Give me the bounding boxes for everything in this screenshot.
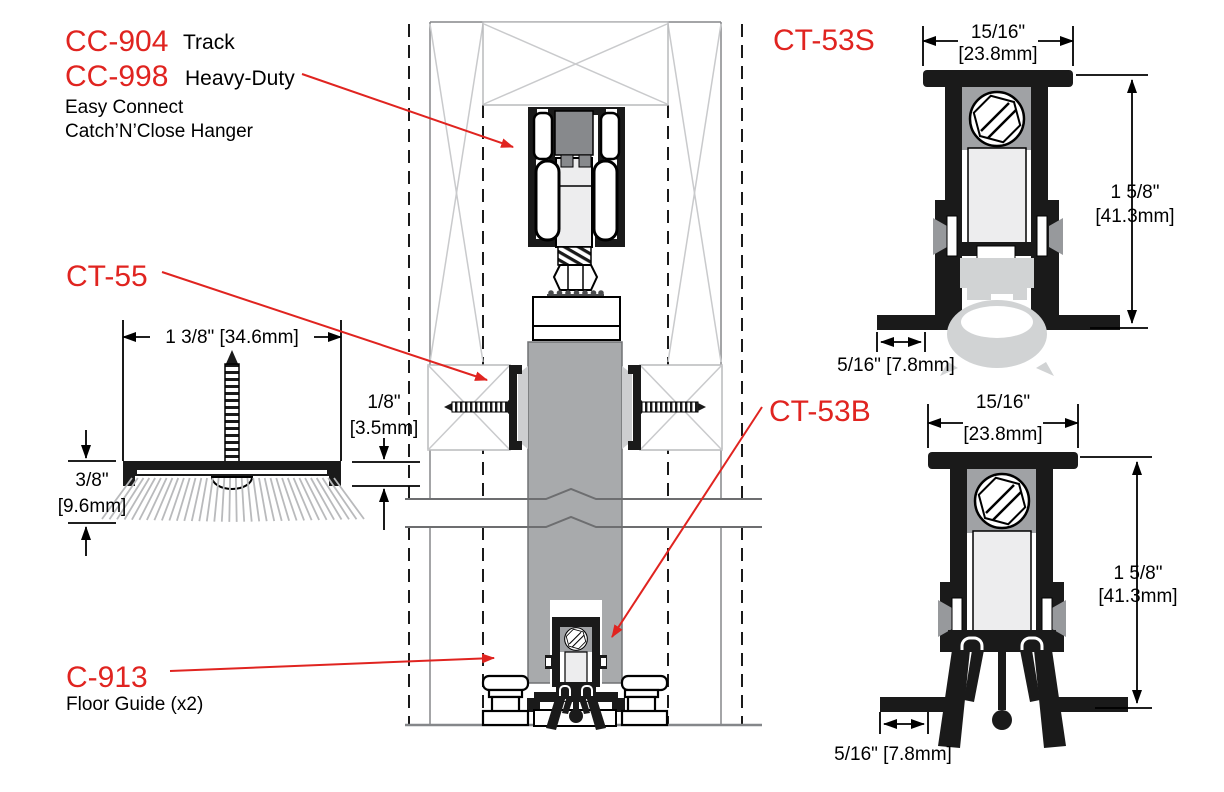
bearing-row: [547, 290, 604, 296]
ct53b-wing-left: [880, 697, 950, 712]
label-cc904-desc: Track: [183, 31, 235, 54]
ct55-hright-mm: [3.5mm]: [350, 418, 419, 439]
hanger-wheel-right: [594, 161, 617, 240]
hanger-bolt-thread: [558, 247, 591, 265]
label-cc904: CC-904: [65, 25, 168, 58]
door-top-plate: [533, 297, 620, 326]
label-ct53s: CT-53S: [773, 24, 875, 57]
ct55-detail: 1 3/8" [34.6mm] 3/8" [9.6mm] 1/8" [3.5mm…: [58, 320, 420, 556]
ct55-hright-in: 1/8": [367, 392, 400, 413]
ct53s-width-mm: [23.8mm]: [958, 44, 1037, 65]
ct53s-profile: [877, 70, 1120, 376]
ct53s-plunger: [968, 148, 1026, 250]
ct55-hleft-mm: [9.6mm]: [58, 496, 127, 517]
ct53s-carrier: [960, 258, 1034, 288]
hanger-body: [556, 158, 592, 247]
ct53b-height-in: 1 5/8": [1113, 563, 1162, 584]
ct53s-height-dim: 1 5/8" [41.3mm]: [1076, 75, 1175, 328]
leader-c913: [170, 658, 494, 671]
header-blocking: [483, 22, 668, 105]
ct53s-detail: 15/16" [23.8mm]: [837, 22, 1174, 376]
label-ct55: CT-55: [66, 260, 148, 293]
hanger-nut: [554, 265, 597, 290]
ct55-height-dim-left: 3/8" [9.6mm]: [58, 430, 127, 556]
ct53b-height-mm: [41.3mm]: [1098, 586, 1177, 607]
ct53s-flange-dim: 5/16" [7.8mm]: [837, 332, 955, 376]
ct53b-width-mm: [23.8mm]: [963, 424, 1042, 445]
brush-right: [622, 366, 632, 449]
ct53s-width-in: 15/16": [971, 22, 1025, 43]
diagram-page: 1 3/8" [34.6mm] 3/8" [9.6mm] 1/8" [3.5mm…: [0, 0, 1224, 792]
ct53b-flange-dim: 5/16" [7.8mm]: [834, 712, 952, 765]
hanger-trolley: [555, 111, 593, 155]
leader-ct55: [162, 272, 487, 380]
label-c913: C-913: [66, 661, 148, 694]
ct53s-height-in: 1 5/8": [1110, 182, 1159, 203]
ct53s-wing-left: [877, 315, 935, 330]
ct53b-ball-tip: [992, 710, 1012, 730]
track-pocket-right: [601, 113, 619, 159]
brush-left: [518, 366, 528, 449]
ct53b-height-dim: 1 5/8" [41.3mm]: [1080, 457, 1178, 708]
label-c913-desc: Floor Guide (x2): [66, 694, 203, 715]
ct53b-profile: [880, 452, 1128, 748]
hardware-section-diagram: 1 3/8" [34.6mm] 3/8" [9.6mm] 1/8" [3.5mm…: [0, 0, 1224, 792]
door-top-strip: [533, 326, 620, 340]
ct53b-detail: 15/16" [23.8mm]: [834, 392, 1177, 765]
label-cc998-line3: Catch’N’Close Hanger: [65, 121, 254, 142]
ct53b-plunger: [973, 531, 1031, 641]
floor-guide-right: [622, 676, 667, 725]
leader-cc998: [302, 74, 513, 147]
ct53s-flange-dim-text: 5/16" [7.8mm]: [837, 355, 955, 376]
ct53b-width-in: 15/16": [976, 392, 1030, 413]
floor-guide-left: [483, 676, 528, 725]
ct55-hleft-in: 3/8": [75, 470, 108, 491]
label-cc998-desc: Heavy-Duty: [185, 67, 295, 90]
label-cc998: CC-998: [65, 60, 168, 93]
track-pocket-left: [534, 113, 552, 159]
ct55-screw: [225, 350, 239, 462]
ct53b-flange-dim-text: 5/16" [7.8mm]: [834, 744, 952, 765]
ct53s-height-mm: [41.3mm]: [1095, 206, 1174, 227]
hanger-wheel-left: [536, 161, 559, 240]
label-cc998-line2: Easy Connect: [65, 97, 184, 118]
ct55-width-dim: 1 3/8" [34.6mm]: [165, 327, 298, 348]
ct53b-wing-right: [1053, 697, 1128, 712]
label-ct53b: CT-53B: [769, 395, 871, 428]
